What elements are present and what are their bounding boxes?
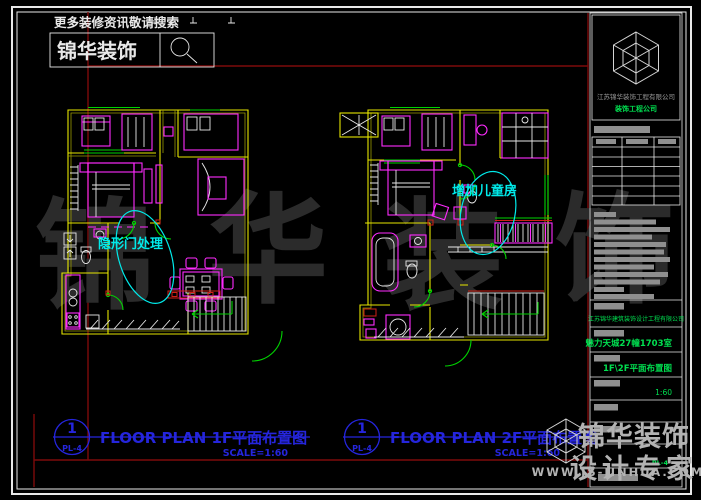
cad-sheet: 锦 华 装 饰 更多装修资讯敬请搜索 锦华装饰	[0, 0, 701, 500]
table-header-bar	[626, 139, 648, 144]
scale-value-text: 1:60	[655, 388, 672, 397]
design-firm-text: 江苏锦华建筑装饰设计工程有限公司	[588, 315, 684, 323]
table-header-bar	[596, 139, 616, 144]
company-logo-cube-icon	[614, 32, 659, 84]
bubble-number: 1	[357, 421, 367, 437]
promo-hint-text: 更多装修资讯敬请搜索	[54, 15, 180, 30]
company-name: 江苏锦华装饰工程有限公司	[597, 92, 675, 101]
watermark-url: WWW.JS-JINHUA.COM	[532, 465, 701, 479]
company-subtitle: 装饰工程公司	[614, 104, 657, 113]
watermark-char: 锦	[35, 188, 155, 327]
plan-scale-1f: SCALE=1:60	[223, 448, 289, 459]
field-label-bar	[594, 380, 620, 387]
watermark-char: 装	[383, 188, 503, 327]
plan-label-1f: 1 PL-4 FLOOR PLAN 1F平面布置图 SCALE=1:60	[53, 420, 310, 460]
watermark-brand: 锦华装饰	[578, 421, 690, 453]
field-label-bar	[594, 355, 620, 362]
search-icon	[171, 38, 197, 63]
promo-brand-text: 锦华装饰	[57, 39, 137, 63]
bubble-ref: PL-4	[352, 444, 372, 453]
watermark-char: 华	[208, 182, 328, 321]
field-label-bar	[594, 126, 650, 133]
annotation-2f-text: 增加儿童房	[452, 183, 517, 199]
drawing-title-text: 1F\2F平面布置图	[603, 363, 672, 374]
project-name-text: 魅力天城27幢1703室	[586, 338, 673, 349]
hatch-2f	[374, 328, 464, 337]
field-label-bar	[594, 303, 624, 310]
annotation-1f-text: 隐形门处理	[98, 236, 163, 252]
plan-title-1f: FLOOR PLAN 1F平面布置图	[100, 429, 307, 447]
field-label-bar	[594, 404, 618, 411]
watermark-center: 锦 华 装 饰	[35, 182, 675, 327]
bubble-number: 1	[67, 421, 77, 437]
plan-label-2f: 1 PL-4 FLOOR PLAN 2F平面布置图 SCALE=1:60	[343, 420, 597, 460]
bubble-ref: PL-4	[62, 444, 82, 453]
tatami-hatch-2f	[495, 218, 552, 243]
field-label-bar	[594, 330, 624, 337]
promo-search: 更多装修资讯敬请搜索 锦华装饰	[50, 15, 235, 67]
table-header-bar	[658, 139, 676, 144]
